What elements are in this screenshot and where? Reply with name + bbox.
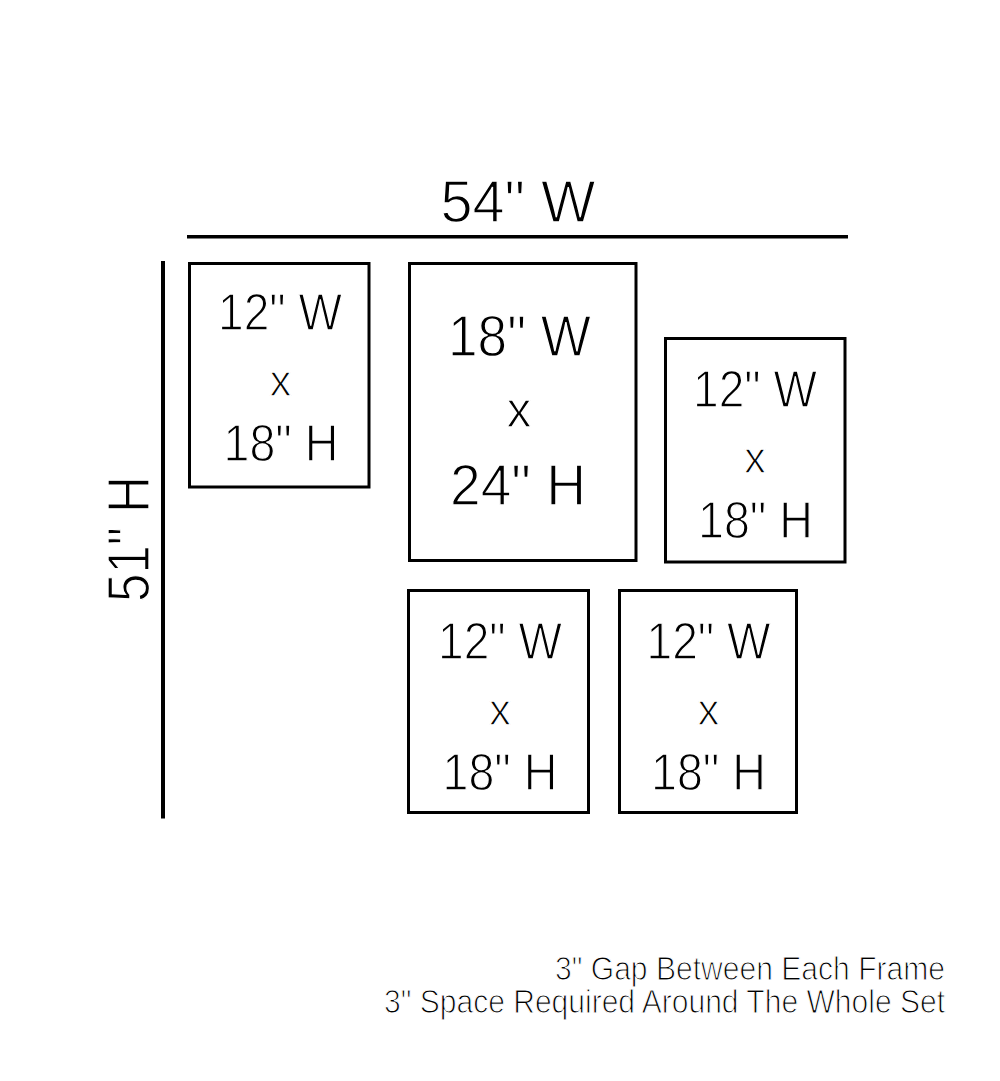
svg-text:x: x (507, 382, 532, 438)
svg-text:x: x (489, 685, 511, 734)
svg-text:x: x (698, 685, 720, 734)
svg-text:51" H: 51" H (95, 476, 162, 602)
svg-text:18" H: 18" H (651, 743, 766, 801)
svg-text:18" H: 18" H (443, 743, 558, 801)
svg-text:12" W: 12" W (647, 612, 771, 670)
svg-text:x: x (270, 356, 292, 405)
svg-text:12" W: 12" W (693, 360, 817, 418)
svg-text:3" Space Required Around The W: 3" Space Required Around The Whole Set (384, 983, 946, 1020)
svg-text:12" W: 12" W (218, 283, 342, 341)
svg-text:x: x (744, 433, 766, 482)
svg-text:54" W: 54" W (441, 169, 596, 235)
svg-text:12" W: 12" W (438, 612, 562, 670)
svg-text:18" H: 18" H (698, 491, 813, 549)
svg-text:24" H: 24" H (450, 453, 586, 517)
svg-text:3" Gap Between Each Frame: 3" Gap Between Each Frame (555, 950, 945, 987)
svg-text:18" W: 18" W (448, 304, 591, 368)
svg-text:18" H: 18" H (224, 414, 339, 472)
